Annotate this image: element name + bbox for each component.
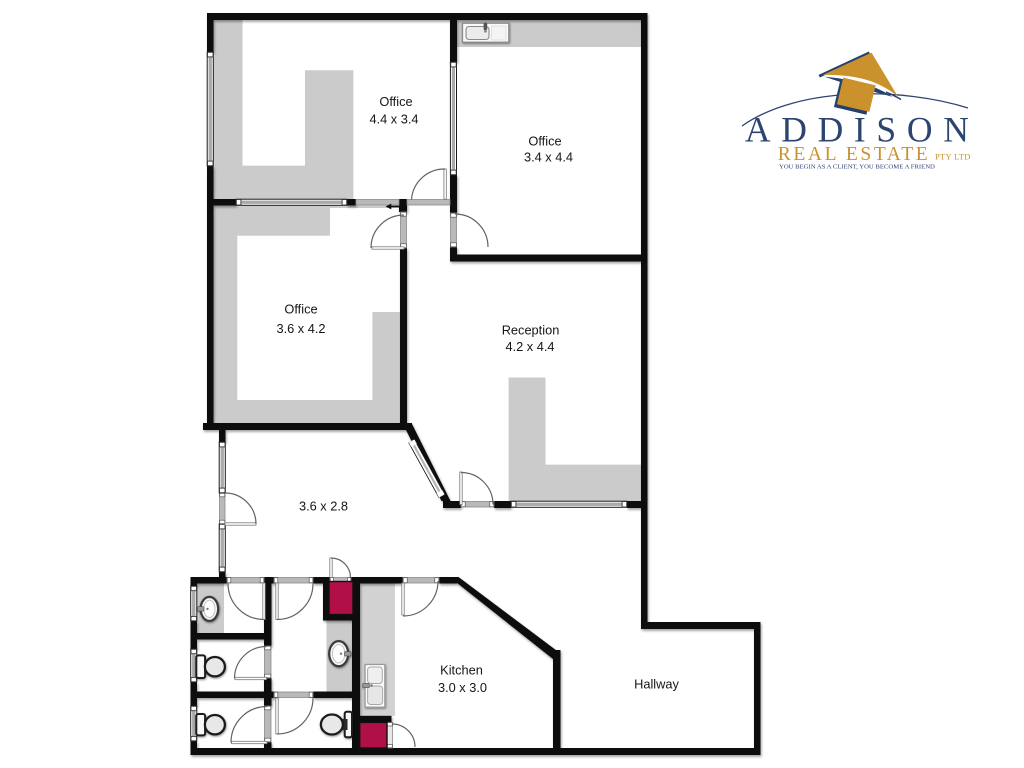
svg-text:Kitchen: Kitchen (440, 662, 483, 677)
svg-text:Office: Office (528, 134, 561, 149)
svg-text:YOU BEGIN AS A CLIENT, YOU BEC: YOU BEGIN AS A CLIENT, YOU BECOME A FRIE… (779, 163, 935, 170)
svg-text:4.2 x 4.4: 4.2 x 4.4 (505, 339, 554, 354)
svg-text:3.6 x 4.2: 3.6 x 4.2 (276, 321, 325, 336)
svg-text:PTY LTD: PTY LTD (935, 152, 971, 162)
svg-text:Hallway: Hallway (634, 677, 679, 692)
svg-text:3.4 x 4.4: 3.4 x 4.4 (524, 150, 573, 165)
svg-text:REAL ESTATE: REAL ESTATE (778, 144, 931, 165)
svg-text:4.4 x 3.4: 4.4 x 3.4 (369, 111, 418, 126)
svg-text:3.0 x 3.0: 3.0 x 3.0 (438, 680, 487, 695)
svg-text:Office: Office (284, 302, 317, 317)
svg-text:Office: Office (379, 94, 412, 109)
svg-text:3.6 x 2.8: 3.6 x 2.8 (299, 499, 348, 514)
svg-text:Reception: Reception (502, 323, 560, 338)
